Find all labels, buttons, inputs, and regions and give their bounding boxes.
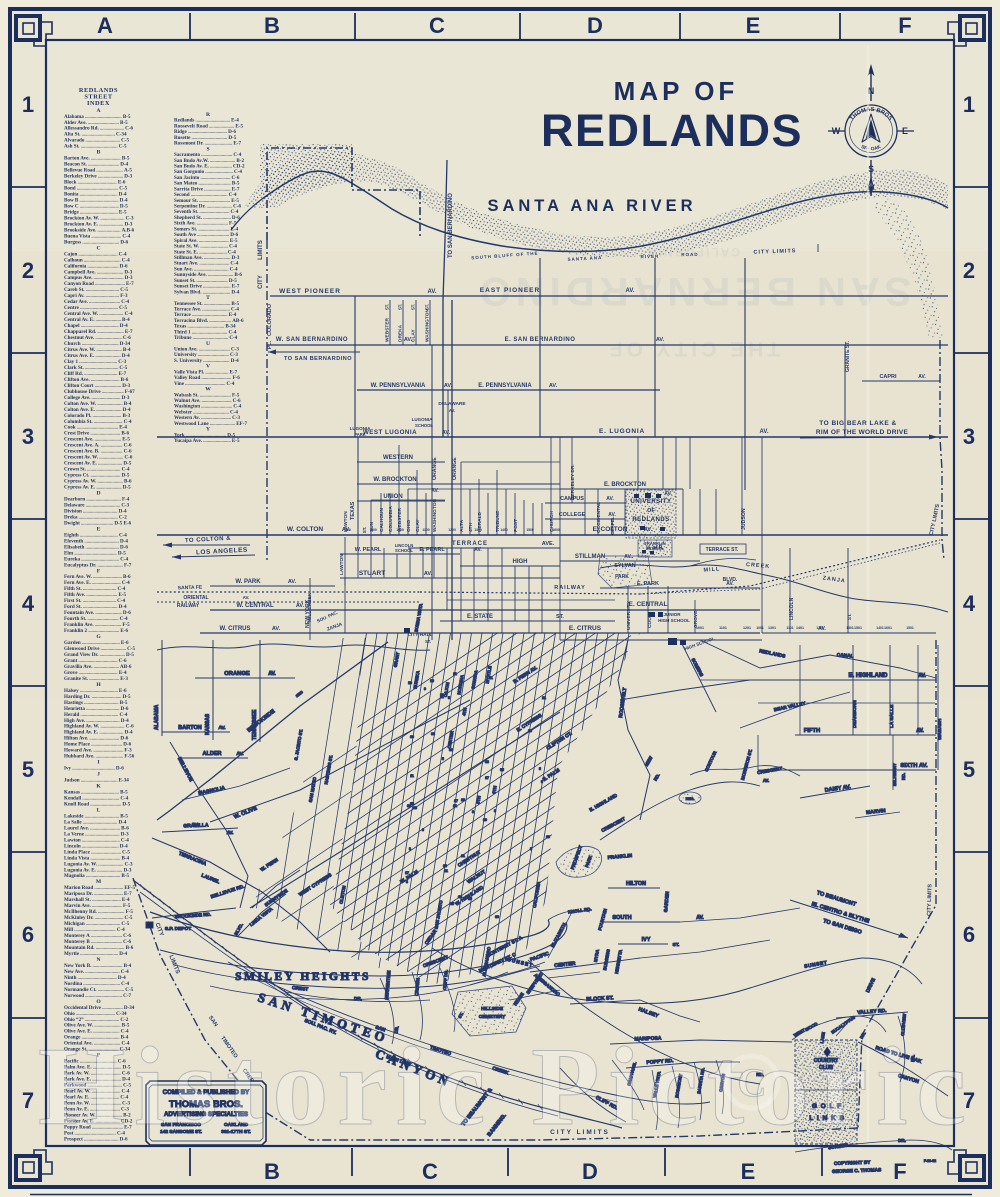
svg-text:HILTON: HILTON xyxy=(626,881,646,887)
svg-text:1400: 1400 xyxy=(500,528,508,532)
svg-text:8: 8 xyxy=(530,847,532,851)
svg-text:5: 5 xyxy=(963,757,975,782)
svg-text:ST.: ST. xyxy=(411,304,416,310)
svg-text:55: 55 xyxy=(410,802,414,806)
svg-text:WABASH: WABASH xyxy=(937,718,943,740)
svg-text:7: 7 xyxy=(22,1088,34,1113)
svg-text:D: D xyxy=(587,13,603,38)
svg-text:ST.: ST. xyxy=(385,304,390,310)
svg-text:SUN: SUN xyxy=(369,521,375,532)
svg-text:AV.: AV. xyxy=(424,571,433,577)
svg-text:DELAWARE: DELAWARE xyxy=(438,401,466,407)
svg-text:MAP OF: MAP OF xyxy=(614,76,739,106)
svg-text:16: 16 xyxy=(430,679,434,683)
svg-text:STUART: STUART xyxy=(359,570,385,577)
svg-text:8: 8 xyxy=(409,847,411,851)
svg-text:E. LUGONIA: E. LUGONIA xyxy=(599,428,645,435)
svg-text:21: 21 xyxy=(453,804,457,808)
svg-text:30: 30 xyxy=(458,895,462,899)
svg-text:CANAL: CANAL xyxy=(836,652,853,659)
svg-text:ST.: ST. xyxy=(362,527,367,534)
svg-text:AV.: AV. xyxy=(549,383,558,389)
svg-text:AV.: AV. xyxy=(606,496,614,502)
svg-text:1601: 1601 xyxy=(884,626,892,630)
svg-text:DREKA: DREKA xyxy=(398,324,404,342)
svg-text:E. CITRUS: E. CITRUS xyxy=(569,625,602,632)
svg-text:B: B xyxy=(264,1159,280,1184)
svg-text:U. of R.: U. of R. xyxy=(646,545,664,551)
svg-text:KANSAS: KANSAS xyxy=(205,713,211,735)
svg-text:1201: 1201 xyxy=(743,626,751,630)
svg-text:TEXAS: TEXAS xyxy=(350,501,356,520)
svg-text:AV.: AV. xyxy=(474,547,482,553)
svg-text:5: 5 xyxy=(22,757,34,782)
svg-text:REDLANDS: REDLANDS xyxy=(541,105,803,156)
svg-text:Historic Pictoric: Historic Pictoric xyxy=(38,1025,968,1149)
svg-text:AV.: AV. xyxy=(268,671,276,677)
svg-text:TO SAN BERNARDINO: TO SAN BERNARDINO xyxy=(448,193,454,258)
svg-text:AV.: AV. xyxy=(625,288,634,294)
svg-text:1301: 1301 xyxy=(846,626,854,630)
svg-text:AV.: AV. xyxy=(449,408,455,413)
svg-text:D: D xyxy=(582,1159,598,1184)
svg-text:C: C xyxy=(422,1159,438,1184)
svg-text:AV.: AV. xyxy=(427,289,436,295)
svg-text:30: 30 xyxy=(495,915,499,919)
svg-text:AV.: AV. xyxy=(272,626,281,632)
svg-text:LUGONIA: LUGONIA xyxy=(412,417,433,422)
svg-text:AV.: AV. xyxy=(236,751,243,757)
svg-text:JUDSON: JUDSON xyxy=(741,508,747,530)
svg-text:COLLEGE: COLLEGE xyxy=(559,512,586,518)
svg-text:RAILWAY: RAILWAY xyxy=(554,585,586,591)
svg-text:WEST PIONEER: WEST PIONEER xyxy=(279,288,341,295)
svg-text:WEBSTER: WEBSTER xyxy=(385,317,391,342)
svg-text:TERRACE ST.: TERRACE ST. xyxy=(706,547,739,553)
svg-text:F: F xyxy=(898,13,911,38)
svg-text:CAPRI: CAPRI xyxy=(879,374,897,380)
svg-text:E: E xyxy=(746,13,761,38)
svg-text:W. CITRUS: W. CITRUS xyxy=(220,626,251,632)
svg-text:BLVD.: BLVD. xyxy=(723,577,738,583)
svg-text:9: 9 xyxy=(422,828,424,832)
svg-text:ORANGE: ORANGE xyxy=(224,671,250,677)
svg-text:TENNESSEE: TENNESSEE xyxy=(252,709,258,740)
svg-text:SIXTH AV.: SIXTH AV. xyxy=(900,763,928,769)
svg-text:AV.: AV. xyxy=(818,626,826,632)
svg-text:W: W xyxy=(832,126,841,136)
svg-text:TO SAN BERNARDINO: TO SAN BERNARDINO xyxy=(284,356,352,362)
svg-text:PARK: PARK xyxy=(615,574,629,580)
svg-text:HILLSIDE: HILLSIDE xyxy=(481,1006,504,1012)
svg-text:1: 1 xyxy=(963,92,975,117)
svg-text:30: 30 xyxy=(449,748,453,752)
svg-text:TO BIG BEAR LAKE &: TO BIG BEAR LAKE & xyxy=(819,420,897,427)
svg-text:B: B xyxy=(264,13,280,38)
svg-text:E. PENNSYLVANIA: E. PENNSYLVANIA xyxy=(478,383,532,389)
svg-text:SMILEY HEIGHTS: SMILEY HEIGHTS xyxy=(235,971,371,983)
svg-text:C: C xyxy=(738,1060,767,1105)
svg-text:21: 21 xyxy=(444,869,448,873)
svg-text:E. STATE: E. STATE xyxy=(467,614,493,620)
svg-text:17: 17 xyxy=(454,799,458,803)
svg-text:GRANITE ST.: GRANITE ST. xyxy=(845,340,851,372)
svg-text:9: 9 xyxy=(494,809,496,813)
svg-text:1501: 1501 xyxy=(906,626,914,630)
svg-text:33: 33 xyxy=(413,806,417,810)
svg-text:21: 21 xyxy=(542,696,546,700)
svg-text:6: 6 xyxy=(963,922,975,947)
svg-text:AV.: AV. xyxy=(444,383,453,389)
svg-text:AV.: AV. xyxy=(243,595,250,600)
svg-text:EAST PIONEER: EAST PIONEER xyxy=(480,287,540,294)
svg-text:ROAD: ROAD xyxy=(681,252,698,258)
svg-text:ORIENTAL: ORIENTAL xyxy=(183,595,208,601)
svg-text:21: 21 xyxy=(461,854,465,858)
svg-text:55: 55 xyxy=(468,897,472,901)
svg-text:LINCOLN: LINCOLN xyxy=(789,597,795,620)
svg-text:23: 23 xyxy=(461,798,465,802)
svg-text:5: 5 xyxy=(539,767,541,771)
svg-text:LUGONIA: LUGONIA xyxy=(350,426,371,431)
svg-text:30: 30 xyxy=(483,818,487,822)
svg-text:COLUMBIA: COLUMBIA xyxy=(388,506,394,532)
svg-text:11: 11 xyxy=(440,695,444,699)
svg-text:UNION: UNION xyxy=(383,494,402,500)
svg-text:ALABAMA: ALABAMA xyxy=(154,704,160,730)
svg-text:AV.: AV. xyxy=(916,728,924,734)
svg-text:SCHOOL: SCHOOL xyxy=(415,423,433,428)
svg-text:MILL CREEK: MILL CREEK xyxy=(307,592,313,622)
svg-text:AV.: AV. xyxy=(296,603,305,609)
svg-text:CHURCH: CHURCH xyxy=(549,511,555,532)
svg-text:AVE.: AVE. xyxy=(542,541,555,547)
svg-text:CALHOUN: CALHOUN xyxy=(379,507,385,532)
svg-text:UNIVERSITY: UNIVERSITY xyxy=(630,499,671,505)
svg-text:4TH: 4TH xyxy=(468,522,474,532)
svg-text:C: C xyxy=(429,13,445,38)
svg-text:SYLVAN: SYLVAN xyxy=(614,563,636,569)
svg-text:E. BROCKTON: E. BROCKTON xyxy=(604,482,646,488)
svg-text:33: 33 xyxy=(485,760,489,764)
svg-text:16: 16 xyxy=(528,729,532,733)
svg-text:SOUTH: SOUTH xyxy=(612,915,631,921)
svg-text:55: 55 xyxy=(450,902,454,906)
svg-text:CITY: CITY xyxy=(258,275,264,289)
svg-text:W. BROCKTON: W. BROCKTON xyxy=(373,477,416,483)
svg-text:CEMETERY: CEMETERY xyxy=(479,1014,506,1020)
svg-text:DR.: DR. xyxy=(354,996,362,1001)
svg-text:1001: 1001 xyxy=(696,626,704,630)
svg-text:ST.: ST. xyxy=(398,304,403,310)
svg-text:1501: 1501 xyxy=(854,626,862,630)
svg-text:E: E xyxy=(741,1159,756,1184)
svg-text:ALTA: ALTA xyxy=(459,519,465,532)
svg-text:1401: 1401 xyxy=(876,626,884,630)
svg-text:MILHENNY: MILHENNY xyxy=(892,763,897,786)
svg-text:CHAPEL: CHAPEL xyxy=(610,516,615,535)
svg-text:1101: 1101 xyxy=(719,626,727,630)
svg-text:16: 16 xyxy=(546,835,550,839)
svg-text:AV.: AV. xyxy=(288,579,297,585)
svg-text:RAILWAY: RAILWAY xyxy=(177,603,200,609)
svg-text:UNIVERSITY: UNIVERSITY xyxy=(626,600,632,630)
svg-text:REDLANDS: REDLANDS xyxy=(632,517,669,523)
svg-text:SANTA ANA RIVER: SANTA ANA RIVER xyxy=(487,197,696,215)
svg-text:1401: 1401 xyxy=(796,626,804,630)
svg-text:E. PARK: E. PARK xyxy=(637,581,659,587)
svg-text:HERALD: HERALD xyxy=(477,511,483,532)
svg-text:E. HIGHLAND: E. HIGHLAND xyxy=(849,673,889,679)
svg-text:WASHINGTON: WASHINGTON xyxy=(425,309,431,342)
svg-text:OHIO: OHIO xyxy=(406,519,412,532)
svg-text:F: F xyxy=(893,1159,906,1184)
svg-text:55: 55 xyxy=(500,768,504,772)
svg-text:33: 33 xyxy=(431,732,435,736)
svg-text:E: E xyxy=(902,126,908,136)
svg-text:30: 30 xyxy=(410,735,414,739)
svg-text:AV.: AV. xyxy=(218,725,225,731)
svg-text:1001: 1001 xyxy=(756,626,764,630)
svg-text:ORANGE: ORANGE xyxy=(452,457,458,480)
svg-text:AV.: AV. xyxy=(227,830,234,835)
svg-text:TERRACE: TERRACE xyxy=(452,541,488,547)
svg-text:5: 5 xyxy=(541,780,543,784)
svg-text:CLAY: CLAY xyxy=(415,519,421,532)
svg-text:IVY: IVY xyxy=(642,937,651,943)
svg-text:3: 3 xyxy=(22,424,34,449)
svg-text:33: 33 xyxy=(443,864,447,868)
svg-text:1301: 1301 xyxy=(768,626,776,630)
svg-text:ALDER: ALDER xyxy=(203,751,222,757)
svg-text:6: 6 xyxy=(22,922,34,947)
svg-text:HIGH SCHOOL: HIGH SCHOOL xyxy=(658,618,690,623)
svg-text:SCHOOL: SCHOOL xyxy=(395,548,413,553)
svg-text:RIVER: RIVER xyxy=(640,254,659,260)
svg-text:W. CENTRAL: W. CENTRAL xyxy=(236,603,274,609)
svg-text:17: 17 xyxy=(485,776,489,780)
svg-text:COOK: COOK xyxy=(647,613,653,628)
svg-text:DEARBORN: DEARBORN xyxy=(852,700,858,728)
svg-text:8: 8 xyxy=(406,880,408,884)
svg-text:8: 8 xyxy=(472,810,474,814)
svg-text:GRAVILLA: GRAVILLA xyxy=(183,823,209,830)
svg-text:W. COLTON: W. COLTON xyxy=(287,526,324,533)
svg-text:POST: POST xyxy=(513,519,519,532)
svg-text:LAWTON: LAWTON xyxy=(339,554,345,575)
svg-text:4: 4 xyxy=(22,591,35,616)
svg-text:ST.: ST. xyxy=(673,942,680,947)
svg-text:HIGH: HIGH xyxy=(513,559,528,565)
svg-text:FIFTH: FIFTH xyxy=(804,728,820,734)
svg-text:11: 11 xyxy=(489,676,493,680)
svg-text:ORANGE: ORANGE xyxy=(432,457,438,480)
svg-text:AV.: AV. xyxy=(918,673,926,679)
svg-text:5: 5 xyxy=(442,757,444,761)
svg-text:BARTON: BARTON xyxy=(178,725,201,731)
svg-text:A: A xyxy=(97,13,113,38)
svg-text:W. PENNSYLVANIA: W. PENNSYLVANIA xyxy=(371,383,426,389)
svg-text:AV.: AV. xyxy=(656,337,665,343)
svg-text:AV.: AV. xyxy=(918,374,926,380)
svg-text:JUNIOR: JUNIOR xyxy=(663,612,681,617)
svg-text:PARK: PARK xyxy=(354,432,366,437)
svg-text:ST.: ST. xyxy=(425,304,430,310)
svg-text:CITY LIMITS: CITY LIMITS xyxy=(926,884,933,917)
svg-text:11: 11 xyxy=(453,672,457,676)
svg-text:LA SALLE: LA SALLE xyxy=(889,704,895,728)
svg-text:1: 1 xyxy=(22,92,34,117)
svg-text:OF: OF xyxy=(647,508,655,514)
svg-text:9: 9 xyxy=(424,687,426,691)
svg-text:WEBSTER: WEBSTER xyxy=(397,507,403,532)
svg-text:AV.: AV. xyxy=(763,778,769,783)
svg-text:W. PEARL: W. PEARL xyxy=(355,547,382,553)
svg-text:COLORADO: COLORADO xyxy=(267,303,273,336)
svg-text:17: 17 xyxy=(405,871,409,875)
svg-text:11: 11 xyxy=(410,774,414,778)
svg-text:S.P. DEPOT: S.P. DEPOT xyxy=(165,926,191,932)
svg-text:W. PARK: W. PARK xyxy=(235,579,261,585)
svg-text:WESTERN: WESTERN xyxy=(383,455,413,461)
svg-text:CLAY: CLAY xyxy=(411,329,417,342)
svg-text:F-19-32: F-19-32 xyxy=(924,1159,936,1163)
svg-text:3: 3 xyxy=(963,424,975,449)
svg-text:5: 5 xyxy=(448,696,450,700)
svg-text:RIM OF THE WORLD DRIVE: RIM OF THE WORLD DRIVE xyxy=(816,429,909,436)
svg-text:TRIBUNE: TRIBUNE xyxy=(495,510,501,532)
svg-text:4: 4 xyxy=(963,591,976,616)
svg-text:BERKELEY DR.: BERKELEY DR. xyxy=(570,464,576,500)
svg-text:WEST LUGONIA: WEST LUGONIA xyxy=(363,429,417,436)
svg-text:MILL: MILL xyxy=(703,566,720,573)
svg-text:16: 16 xyxy=(408,681,412,685)
svg-text:W. SAN BERNARDINO: W. SAN BERNARDINO xyxy=(276,337,348,343)
svg-text:RD.: RD. xyxy=(901,773,906,780)
svg-text:2: 2 xyxy=(963,258,975,283)
svg-text:LIMITS: LIMITS xyxy=(258,240,264,260)
svg-text:1200: 1200 xyxy=(448,528,456,532)
svg-text:WASHINGTON: WASHINGTON xyxy=(432,499,438,532)
svg-text:RES.: RES. xyxy=(686,797,695,801)
svg-text:THE CITY OF: THE CITY OF xyxy=(606,337,780,360)
svg-text:SANTA FE: SANTA FE xyxy=(178,585,203,592)
svg-text:INDEX: INDEX xyxy=(87,100,110,107)
svg-text:AV.: AV. xyxy=(759,429,768,435)
svg-text:2: 2 xyxy=(22,258,34,283)
svg-text:OCCIDENTAL: OCCIDENTAL xyxy=(596,502,602,533)
svg-text:ST.: ST. xyxy=(847,613,852,620)
svg-text:LAWTON: LAWTON xyxy=(343,511,349,532)
